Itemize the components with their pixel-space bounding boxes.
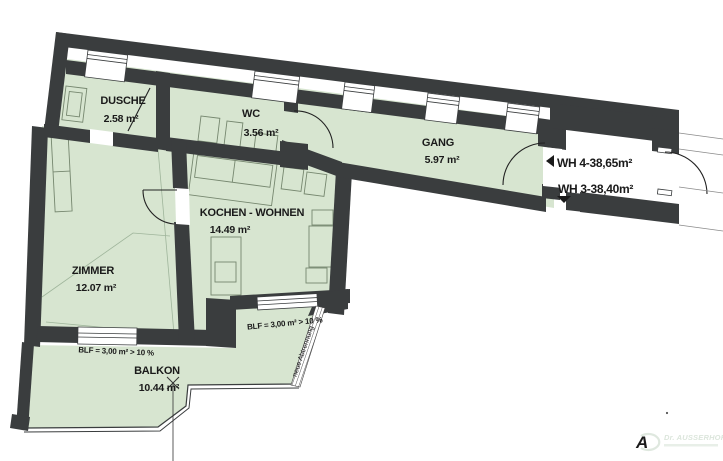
door-frame-notch xyxy=(657,189,672,196)
room-label-balkon: BALKON xyxy=(134,365,180,377)
room-area-wc: 3.56 m² xyxy=(244,127,279,139)
room-area-dusche: 2.58 m² xyxy=(104,113,139,125)
wall-partition-upper xyxy=(171,139,188,190)
room-area-kochen-wohnen: 14.49 m² xyxy=(210,224,251,236)
room-label-zimmer: ZIMMER xyxy=(72,265,114,277)
room-label-dusche: DUSCHE xyxy=(100,95,145,107)
window xyxy=(78,327,137,345)
watermark-brand: Dr. AUSSERHOFER xyxy=(664,433,723,442)
dusche-door-opening xyxy=(90,129,113,146)
room-area-zimmer: 12.07 m² xyxy=(76,282,117,294)
window xyxy=(342,82,375,113)
unit-label-wh3: WH 3-38,40m² xyxy=(558,182,633,196)
room-fill-zimmer xyxy=(36,126,192,341)
dot xyxy=(666,412,668,414)
room-area-balkon: 10.44 m² xyxy=(139,382,180,394)
watermark: A Dr. AUSSERHOFER xyxy=(635,433,723,452)
room-label-gang: GANG xyxy=(422,137,454,149)
floor-plan-page: DUSCHE 2.58 m² WC 3.56 m² GANG 5.97 m² K… xyxy=(0,0,723,461)
room-area-gang: 5.97 m² xyxy=(425,154,460,166)
thin-line xyxy=(679,225,723,231)
window xyxy=(85,50,128,82)
window xyxy=(505,103,540,134)
room-label-kochen-wohnen: KOCHEN - WOHNEN xyxy=(200,207,305,219)
watermark-subline xyxy=(664,444,718,447)
wall-dusche-right xyxy=(156,71,170,151)
thin-line xyxy=(679,149,723,155)
window xyxy=(425,93,460,124)
corridor-continuation-lines xyxy=(679,133,723,231)
floor-plan-drawing: DUSCHE 2.58 m² WC 3.56 m² GANG 5.97 m² K… xyxy=(0,0,723,461)
thin-line xyxy=(679,187,723,193)
zimmer-door-opening xyxy=(175,188,190,225)
thin-line xyxy=(679,133,723,139)
room-label-wc: WC xyxy=(242,108,260,120)
unit-label-wh4: WH 4-38,65m² xyxy=(557,156,632,170)
wall-corridor-bottom xyxy=(580,192,679,224)
window xyxy=(252,71,300,103)
